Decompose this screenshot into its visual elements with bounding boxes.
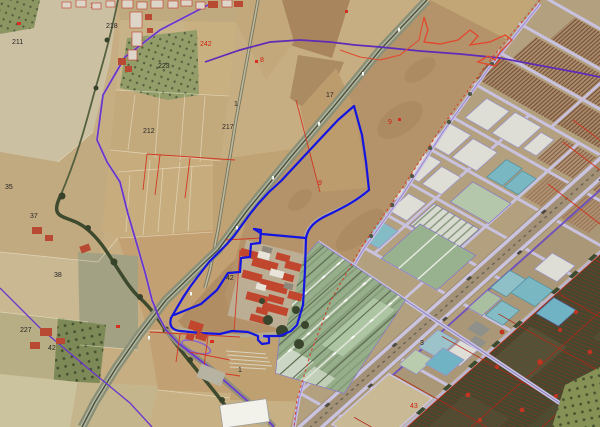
svg-text:42: 42	[226, 275, 234, 282]
svg-text:223: 223	[158, 63, 170, 70]
svg-text:9: 9	[388, 119, 392, 126]
svg-text:37: 37	[30, 213, 38, 220]
svg-text:8: 8	[260, 57, 264, 64]
svg-text:212: 212	[143, 128, 155, 135]
svg-text:211: 211	[12, 39, 23, 46]
svg-text:1: 1	[234, 101, 238, 108]
svg-text:1: 1	[238, 367, 242, 374]
svg-text:218: 218	[106, 23, 118, 30]
svg-text:43: 43	[410, 403, 418, 410]
svg-text:38: 38	[54, 272, 62, 279]
svg-text:3: 3	[420, 340, 424, 347]
svg-text:42: 42	[48, 345, 56, 352]
svg-text:17: 17	[326, 92, 334, 99]
svg-text:217: 217	[222, 124, 234, 131]
svg-text:227: 227	[20, 327, 32, 334]
svg-text:9: 9	[318, 180, 322, 187]
svg-text:35: 35	[5, 184, 13, 191]
svg-text:242: 242	[200, 41, 212, 48]
